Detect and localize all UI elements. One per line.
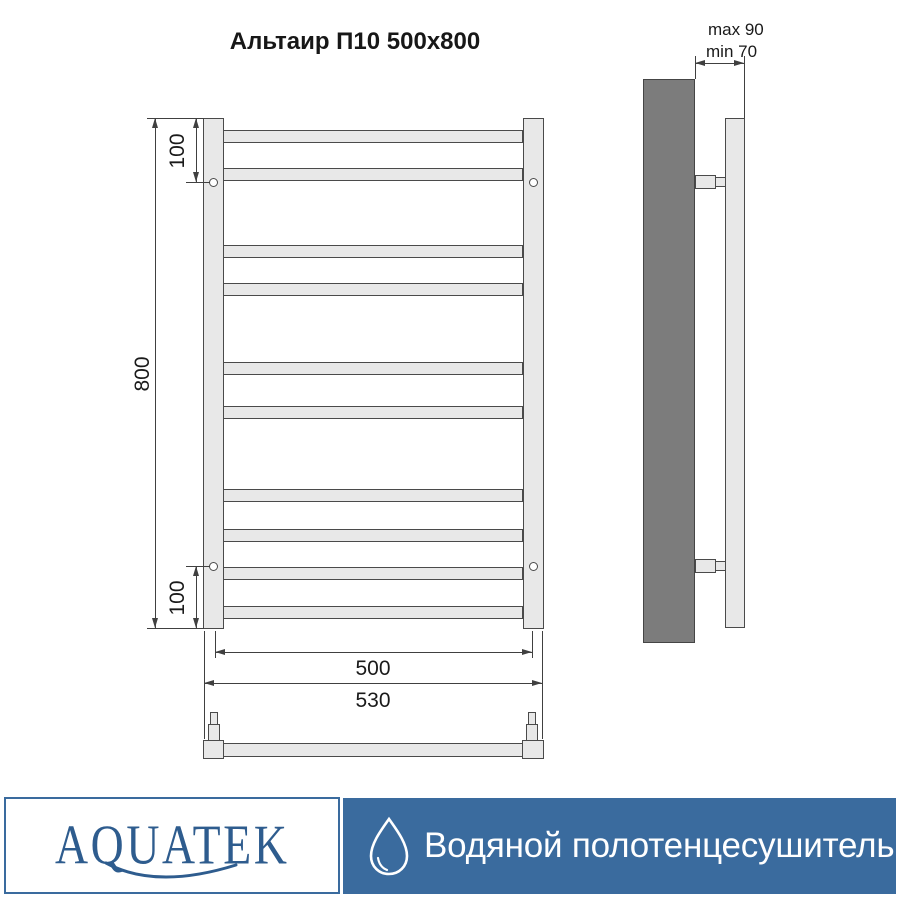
wall xyxy=(643,79,695,643)
rung xyxy=(223,529,523,542)
dim-label-depth-min: min 70 xyxy=(706,42,757,62)
arrowhead xyxy=(193,118,199,128)
rung xyxy=(223,168,523,181)
rung xyxy=(223,362,523,375)
arrowhead xyxy=(152,618,158,628)
dim-label-bottom-offset: 100 xyxy=(166,568,190,628)
rung xyxy=(223,567,523,580)
dim-label-height: 800 xyxy=(131,344,155,404)
dim-label-top-offset: 100 xyxy=(166,121,190,181)
product-type-label: Водяной полотенцесушитель xyxy=(424,798,894,894)
dim-label-depth-max: max 90 xyxy=(708,20,764,40)
corner-fitting xyxy=(522,740,544,759)
wall-bracket xyxy=(695,175,716,189)
rung xyxy=(223,606,523,619)
arrowhead xyxy=(193,566,199,576)
arrowhead xyxy=(695,60,705,66)
rung xyxy=(223,245,523,258)
mounting-hole xyxy=(529,562,538,571)
dim-line-800 xyxy=(155,118,156,628)
drawing-title: Альтаир П10 500x800 xyxy=(155,28,555,56)
arrowhead xyxy=(152,118,158,128)
connector-union xyxy=(208,724,220,741)
bottom-tube xyxy=(222,743,524,757)
arrowhead xyxy=(204,680,214,686)
rung xyxy=(223,489,523,502)
dim-line-530 xyxy=(204,683,542,684)
arrowhead xyxy=(532,680,542,686)
rung xyxy=(223,406,523,419)
mounting-hole xyxy=(209,178,218,187)
connector-union xyxy=(526,724,538,741)
towel-rail-drawing-page: Альтаир П10 500x800 800 100 100 xyxy=(0,0,900,900)
extension-line xyxy=(542,631,543,739)
logo-swash xyxy=(96,860,246,886)
extension-line xyxy=(186,182,210,183)
wall-bracket xyxy=(695,559,716,573)
side-pipe xyxy=(725,118,745,628)
left-post xyxy=(203,118,224,629)
wall-bracket-neck xyxy=(715,177,726,187)
arrowhead xyxy=(734,60,744,66)
arrowhead xyxy=(193,618,199,628)
extension-line xyxy=(532,631,533,658)
dim-line-500 xyxy=(215,652,532,653)
rung xyxy=(223,130,523,143)
arrowhead xyxy=(215,649,225,655)
dim-label-overall-width: 530 xyxy=(343,689,403,713)
arrowhead xyxy=(522,649,532,655)
wall-bracket-neck xyxy=(715,561,726,571)
water-drop-icon xyxy=(366,816,412,878)
arrowhead xyxy=(193,172,199,182)
mounting-hole xyxy=(529,178,538,187)
mounting-hole xyxy=(209,562,218,571)
rung xyxy=(223,283,523,296)
extension-line xyxy=(744,56,745,118)
extension-line xyxy=(147,628,204,629)
corner-fitting xyxy=(203,740,224,759)
dim-label-axis-width: 500 xyxy=(343,657,403,681)
right-post xyxy=(523,118,544,629)
